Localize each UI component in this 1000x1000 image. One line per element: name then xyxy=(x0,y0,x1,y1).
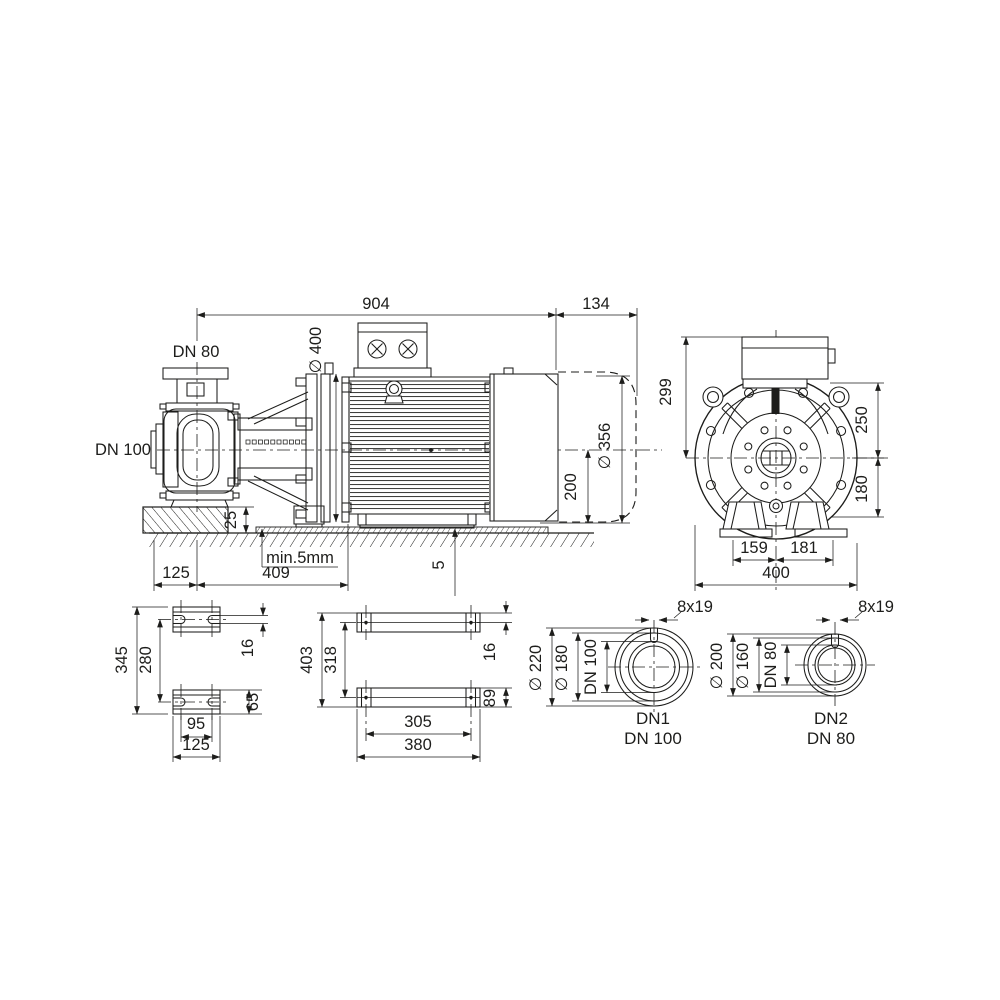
label-dn2-size: DN 80 xyxy=(807,729,855,748)
dim-foot-span: 409 xyxy=(262,564,290,582)
dim-upper-radius: 250 xyxy=(853,406,871,434)
dim-motor-diameter: ∅ 356 xyxy=(596,423,614,470)
terminal-box xyxy=(354,323,431,377)
suction-flange xyxy=(163,412,178,487)
dim-slot-spacing: 95 xyxy=(187,715,205,733)
motor xyxy=(342,323,636,528)
dim-height-above-center: 299 xyxy=(657,378,675,406)
pump-casing xyxy=(151,368,239,507)
dim-foot-left: 159 xyxy=(740,539,768,557)
pump-dimensional-drawing: 904 134 DN 80 DN 100 ∅ 400 ∅ 356 200 25 … xyxy=(0,0,1000,1000)
flange-dn2-view: ∅ 200 ∅ 160 DN 80 8x19 DN2 DN 80 xyxy=(708,598,894,748)
side-view: 904 134 DN 80 DN 100 ∅ 400 ∅ 356 200 25 … xyxy=(95,295,662,596)
dim-dn1-holes: 8x19 xyxy=(677,598,713,616)
motor-foot xyxy=(358,514,476,525)
dim-feet-slot: 16 xyxy=(239,639,257,657)
front-terminal-box xyxy=(742,337,835,388)
dim-foot-height: 65 xyxy=(244,693,262,711)
label-discharge-flange: DN 80 xyxy=(173,343,220,361)
eyebolt-icon xyxy=(385,381,403,403)
support-foot xyxy=(294,506,324,524)
motor-fins xyxy=(350,383,489,511)
dim-rails-hole-spacing-v: 318 xyxy=(322,646,340,674)
dim-rail-width: 380 xyxy=(404,736,432,754)
dim-pedestal-height: 25 xyxy=(222,511,240,529)
dim-rails-overall: 403 xyxy=(298,646,316,674)
front-view: 299 250 180 159 181 400 xyxy=(657,330,888,592)
dim-rails-hole-spacing-h: 305 xyxy=(404,713,432,731)
dim-feet-spacing: 280 xyxy=(137,646,155,674)
dim-rails-hole-offset: 16 xyxy=(481,643,499,661)
fan-cover xyxy=(490,368,558,521)
dim-overall-length: 904 xyxy=(362,295,390,313)
dim-dn1-bolt-circle: ∅ 180 xyxy=(553,645,571,692)
dim-dn2-bore: DN 80 xyxy=(762,642,780,689)
dim-lower-radius: 180 xyxy=(853,475,871,503)
dim-foot-right: 181 xyxy=(790,539,818,557)
dim-overall-width: 400 xyxy=(762,564,790,582)
pedestal-block xyxy=(143,507,228,533)
dim-dn1-bore: DN 100 xyxy=(582,639,600,695)
dim-foot-width: 125 xyxy=(182,736,210,754)
dim-foot-offset: 125 xyxy=(162,564,190,582)
dim-flange-diameter: ∅ 400 xyxy=(307,327,325,374)
label-dn1: DN1 xyxy=(636,709,670,728)
dim-rail-height: 89 xyxy=(481,689,499,707)
label-dn2: DN2 xyxy=(814,709,848,728)
drawing-canvas: 904 134 DN 80 DN 100 ∅ 400 ∅ 356 200 25 … xyxy=(0,0,1000,1000)
dim-dn1-outer: ∅ 220 xyxy=(527,645,545,692)
dim-removal-space: 134 xyxy=(582,295,610,313)
dim-feet-overall: 345 xyxy=(113,646,131,674)
dim-dn2-bolt-circle: ∅ 160 xyxy=(734,643,752,690)
label-suction-flange: DN 100 xyxy=(95,441,151,459)
dim-dn2-outer: ∅ 200 xyxy=(708,643,726,690)
pump-feet-view: 345 280 16 65 95 125 xyxy=(113,600,268,762)
dim-shim: 5 xyxy=(430,560,448,569)
drain-plug-icon xyxy=(770,500,783,513)
dim-shaft-height: 200 xyxy=(562,473,580,501)
label-dn1-size: DN 100 xyxy=(624,729,682,748)
dim-dn2-holes: 8x19 xyxy=(858,598,894,616)
flange-dn1-view: ∅ 220 ∅ 180 DN 100 8x19 DN1 DN 100 xyxy=(527,598,713,748)
motor-feet-view: 403 318 16 89 305 380 xyxy=(298,601,512,762)
lantern-bracket xyxy=(248,363,349,527)
